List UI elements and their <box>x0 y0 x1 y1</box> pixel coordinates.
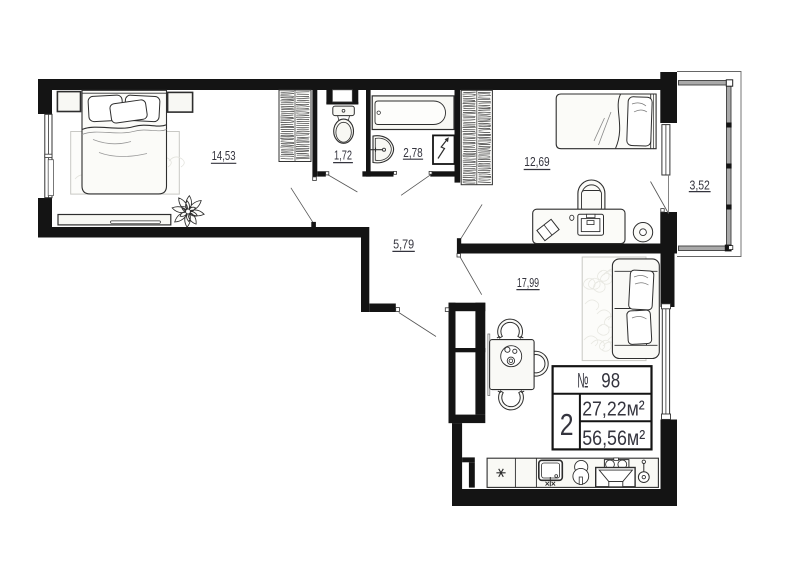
svg-text:2,78: 2,78 <box>403 145 422 160</box>
svg-text:12,69: 12,69 <box>524 154 549 169</box>
svg-text:14,53: 14,53 <box>212 148 236 163</box>
svg-text:17,99: 17,99 <box>517 275 539 290</box>
svg-text:56,56м²: 56,56м² <box>582 427 645 450</box>
svg-text:№: № <box>577 369 588 392</box>
svg-text:1,72: 1,72 <box>334 148 352 163</box>
svg-text:2: 2 <box>560 407 574 442</box>
svg-text:3,52: 3,52 <box>690 177 710 192</box>
svg-text:27,22м²: 27,22м² <box>582 398 645 421</box>
svg-text:5,79: 5,79 <box>393 236 414 251</box>
svg-text:98: 98 <box>601 368 620 392</box>
